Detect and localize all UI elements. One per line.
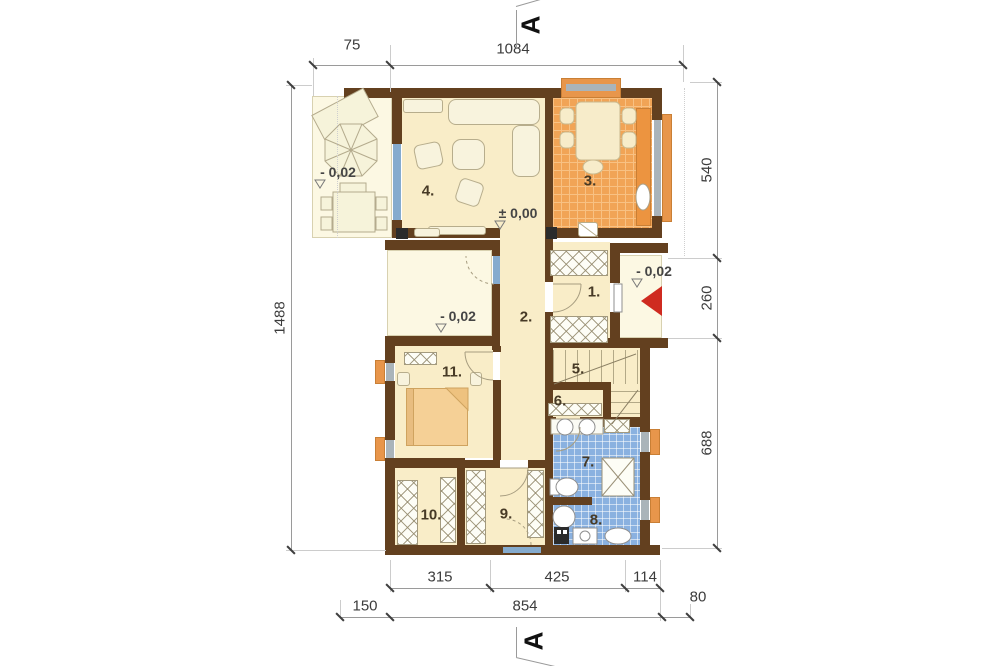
fireplace — [396, 228, 408, 239]
kitchen-window — [654, 120, 661, 216]
dim-1488: 1488 — [272, 301, 289, 334]
dim-425: 425 — [544, 569, 569, 586]
wall — [610, 253, 620, 283]
wall — [385, 336, 500, 346]
wall — [545, 427, 553, 545]
bathroom-window — [641, 432, 649, 452]
room10-window — [386, 440, 394, 458]
cabinet — [403, 99, 443, 113]
wardrobe — [550, 316, 608, 343]
nightstand — [470, 372, 482, 386]
sofa — [448, 99, 540, 125]
sofa — [512, 125, 540, 177]
extension-line — [340, 600, 341, 617]
section-marker-bottom: A — [519, 632, 550, 651]
wall — [640, 520, 650, 555]
room-label-2: 2. — [520, 309, 533, 326]
oven — [578, 222, 598, 237]
wall — [493, 346, 501, 352]
room-label-8: 8. — [590, 512, 603, 529]
wall — [528, 460, 545, 468]
wall — [385, 240, 500, 250]
dimension-line — [390, 588, 660, 589]
extension-line — [662, 548, 722, 549]
bedroom11-window — [386, 363, 394, 381]
level-patio: - 0,02 — [440, 308, 476, 324]
dimension-line — [313, 65, 683, 66]
window-sill — [375, 360, 385, 384]
extension-line — [390, 45, 391, 92]
section-line — [516, 657, 557, 666]
wall — [493, 380, 501, 460]
wardrobe — [550, 250, 608, 276]
room-label-6: 6. — [554, 393, 567, 410]
kitchen-counter — [636, 108, 651, 226]
coffee-table — [452, 139, 485, 170]
level-zero: ± 0,00 — [499, 205, 538, 221]
cabinet — [414, 228, 440, 237]
level-porch: - 0,02 — [636, 263, 672, 279]
dim-315: 315 — [427, 569, 452, 586]
room9-window — [503, 547, 541, 553]
wardrobe — [397, 480, 418, 545]
wall — [610, 243, 668, 253]
bay-window — [566, 84, 616, 91]
room-label-1: 1. — [588, 284, 601, 301]
wall — [457, 468, 465, 555]
dimension-line — [291, 85, 292, 550]
wall — [545, 497, 592, 505]
section-line — [516, 627, 517, 657]
window-sill — [650, 429, 660, 455]
stair-treads — [553, 350, 638, 384]
terrace-door-glass — [393, 144, 401, 220]
wall — [545, 382, 605, 390]
room-label-4: 4. — [422, 183, 435, 200]
dim-114: 114 — [633, 569, 657, 586]
wall — [640, 452, 650, 500]
dim-688: 688 — [699, 430, 716, 455]
wardrobe — [440, 477, 456, 543]
wall — [652, 98, 662, 120]
wall — [392, 98, 402, 144]
wall — [545, 98, 553, 238]
dim-260: 260 — [699, 285, 716, 310]
window-sill — [650, 497, 660, 523]
wardrobe — [527, 470, 544, 538]
room-label-3: 3. — [584, 173, 597, 190]
bed — [406, 388, 468, 446]
room-label-9: 9. — [500, 506, 513, 523]
wall — [395, 458, 465, 468]
extension-line — [286, 550, 386, 551]
bathroom-cabinet — [604, 419, 630, 433]
kitchen-window-sill — [662, 114, 672, 222]
wardrobe — [466, 470, 486, 544]
floor-plan: 1. 2. 3. 4. 5. 6. 7. 8. 9. 10. 11. - 0,0… — [0, 0, 1000, 666]
wall — [545, 228, 662, 238]
chimney — [546, 227, 557, 239]
extension-line — [668, 258, 722, 259]
dim-1084: 1084 — [496, 41, 529, 58]
wall — [621, 88, 662, 98]
hallway-floor — [500, 228, 545, 460]
section-marker-top: A — [516, 16, 547, 35]
dimension-line — [717, 82, 718, 548]
room-label-5: 5. — [572, 361, 585, 378]
wall — [385, 381, 395, 440]
wall — [610, 312, 620, 338]
dim-854: 854 — [512, 598, 537, 615]
dim-150: 150 — [352, 598, 377, 615]
level-terrace: - 0,02 — [320, 164, 356, 180]
dim-80: 80 — [690, 589, 707, 606]
axis-line — [684, 88, 685, 256]
wall — [344, 88, 561, 98]
patio-door-glass — [493, 256, 500, 284]
nightstand — [397, 372, 410, 386]
dim-540: 540 — [699, 157, 716, 182]
section-line — [516, 0, 548, 7]
wall — [457, 460, 500, 468]
wall — [385, 458, 395, 555]
dim-75: 75 — [344, 37, 361, 54]
wardrobe — [404, 352, 437, 365]
extension-line — [668, 338, 722, 339]
room-label-10: 10. — [421, 507, 442, 524]
bed-headboard — [406, 388, 414, 446]
utility-window — [641, 500, 649, 520]
room-label-11: 11. — [442, 364, 462, 381]
room-label-7: 7. — [582, 454, 595, 471]
window-sill — [375, 437, 385, 461]
wall — [385, 340, 395, 363]
wall — [545, 417, 556, 427]
